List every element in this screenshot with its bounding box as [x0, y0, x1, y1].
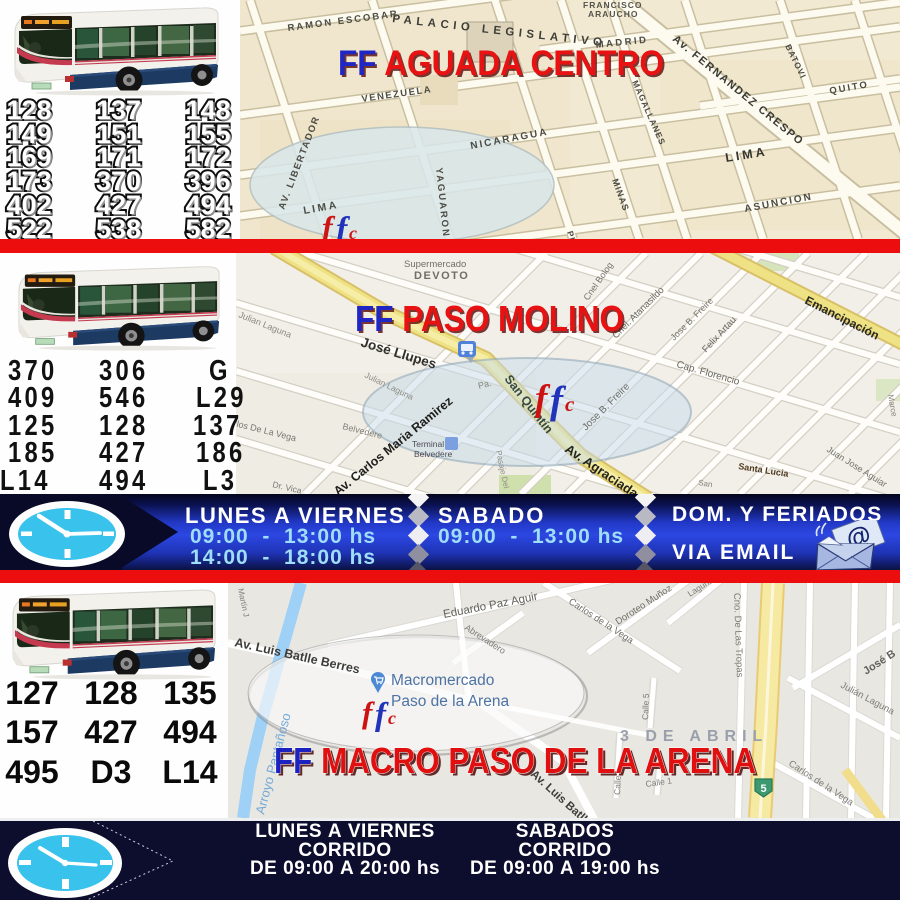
svg-text:Macromercado: Macromercado — [391, 672, 494, 689]
svg-text:ARAUCHO: ARAUCHO — [588, 9, 638, 19]
svg-text:c: c — [565, 392, 575, 416]
svg-text:Belvedere: Belvedere — [414, 449, 453, 459]
svg-text:Supermercado: Supermercado — [404, 259, 466, 270]
svg-text:c: c — [349, 223, 357, 239]
svg-text:Calle 5: Calle 5 — [640, 693, 651, 720]
svg-text:5: 5 — [760, 783, 766, 795]
svg-text:c: c — [388, 708, 396, 728]
svg-text:Paso de la Arena: Paso de la Arena — [391, 693, 509, 710]
svg-text:DEVOTO: DEVOTO — [414, 270, 469, 282]
svg-text:FF PASO MOLINO: FF PASO MOLINO — [355, 298, 624, 339]
svg-text:Terminal: Terminal — [412, 439, 444, 449]
svg-text:FF AGUADA CENTRO: FF AGUADA CENTRO — [338, 44, 664, 83]
svg-text:FF MACRO PASO DE LA ARENA: FF MACRO PASO DE LA ARENA — [274, 740, 756, 781]
